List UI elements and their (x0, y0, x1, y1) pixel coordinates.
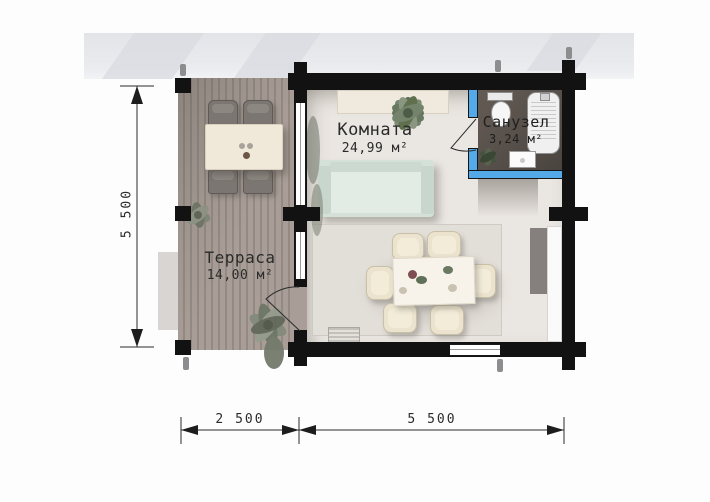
dining-table-icon (392, 256, 475, 306)
room-name: Комната (310, 120, 440, 141)
dining-chair-icon (366, 266, 394, 300)
terrace-chair-icon (208, 100, 238, 127)
terrace-deck-shade (178, 78, 300, 350)
sink-icon (509, 151, 536, 168)
corner-post-icon (175, 340, 191, 355)
table-decor (239, 143, 245, 149)
sofa-seat (330, 172, 422, 213)
table-decor (399, 287, 407, 294)
wall-crossing-left (283, 207, 320, 221)
table-decor (448, 284, 457, 292)
floor-plan: Комната 24,99 м² Терраса 14,00 м² Санузе… (0, 0, 710, 502)
toilet-icon (487, 92, 513, 101)
window-icon (450, 344, 500, 356)
dimension-house-width: 5 500 (392, 412, 472, 427)
bathroom-label: Санузел 3,24 м² (468, 113, 564, 147)
terrace-area: 14,00 м² (180, 268, 300, 284)
table-decor (443, 266, 453, 274)
terrace-chair-icon (243, 100, 273, 127)
dimension-terrace-width: 2 500 (200, 412, 280, 427)
doormat-icon (328, 327, 360, 343)
sofa-armrest-right (421, 166, 434, 214)
corner-post-icon (175, 78, 191, 93)
dining-chair-icon (427, 231, 461, 259)
bathtub-faucet (540, 93, 550, 101)
room-label: Комната 24,99 м² (310, 120, 440, 158)
terrace-chair-icon (243, 167, 273, 194)
stud (183, 357, 189, 370)
corner-post-icon (175, 206, 191, 221)
shelf-shadow (530, 228, 547, 294)
window-icon (295, 103, 306, 205)
wall-top (288, 73, 586, 90)
table-decor (247, 143, 253, 149)
cabinet (337, 90, 449, 114)
stud (566, 47, 572, 59)
terrace-chair-icon (208, 167, 238, 194)
door-opening (294, 287, 307, 330)
wall-bottom (288, 342, 586, 357)
counter (547, 226, 562, 342)
terrace-name: Терраса (180, 248, 300, 268)
bathroom-wall-shadow (478, 179, 538, 217)
table-decor (243, 152, 250, 159)
bathroom-name: Санузел (468, 113, 564, 132)
dimension-height: 5 500 (120, 184, 135, 244)
wall-crossing-right (549, 207, 588, 221)
bathroom-area: 3,24 м² (468, 132, 564, 147)
terrace-label: Терраса 14,00 м² (180, 248, 300, 284)
dining-chair-icon (430, 305, 464, 335)
stud (495, 60, 501, 72)
table-decor (416, 276, 427, 284)
partition-wall (468, 170, 563, 179)
dining-chair-icon (383, 303, 417, 333)
stud (497, 359, 503, 372)
terrace-step (158, 252, 178, 330)
stud (180, 64, 186, 76)
room-area: 24,99 м² (310, 141, 440, 157)
